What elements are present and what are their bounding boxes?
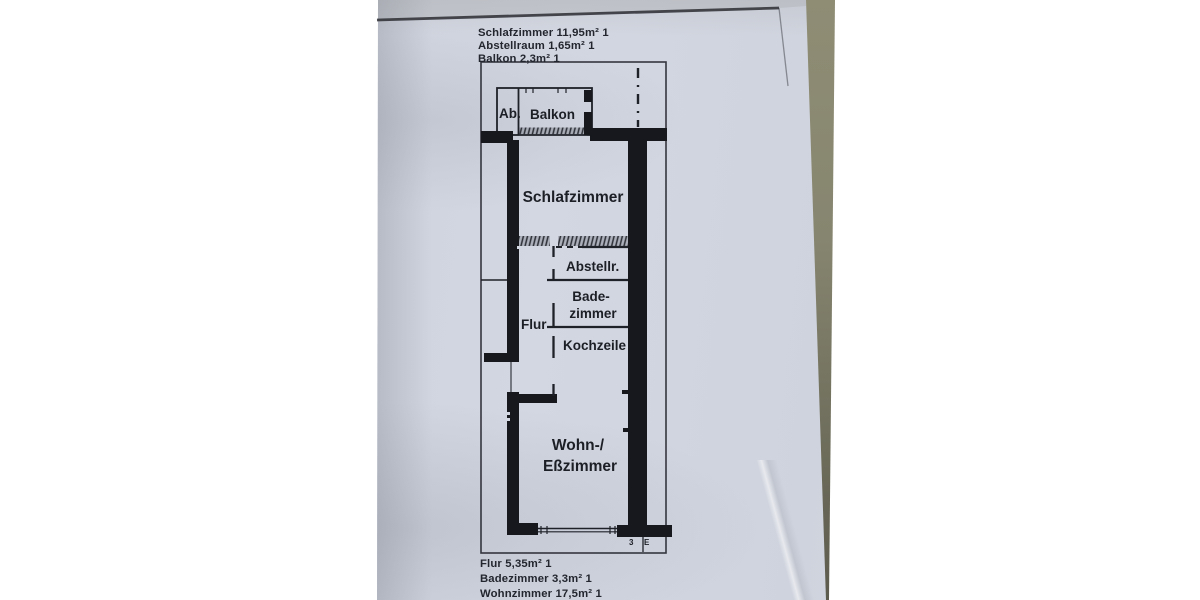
hatched-partition — [519, 236, 628, 246]
room-label-wohnzimmer-1: Wohn-/ — [552, 437, 605, 454]
room-label-flur: Flur — [521, 317, 547, 332]
wall-bottom-right-corner — [617, 525, 672, 537]
photo-of-floor-plan: Schlafzimmer 11,95m² 1 Abstellraum 1,65m… — [0, 0, 1200, 600]
legend-top-line3: Balkon 2,3m² 1 — [478, 53, 560, 65]
room-label-kochzeile: Kochzeile — [563, 338, 627, 353]
balcony-window-hatch — [519, 128, 587, 136]
room-label-schlafzimmer: Schlafzimmer — [523, 189, 624, 206]
room-label-balkon: Balkon — [530, 107, 575, 122]
wall-flur-bottom — [519, 394, 557, 403]
room-label-bad-2: zimmer — [569, 306, 617, 321]
room-label-ab: Ab. — [499, 106, 521, 121]
legend-bottom-line3: Wohnzimmer 17,5m² 1 — [480, 588, 602, 600]
plan-mark-e: E — [644, 538, 650, 547]
room-label-abstellraum: Abstellr. — [566, 259, 619, 274]
legend-bottom-line1: Flur 5,35m² 1 — [480, 558, 552, 570]
wall-bottom-left-corner — [507, 523, 538, 535]
room-label-wohnzimmer-2: Eßzimmer — [543, 458, 617, 475]
room-label-bad-1: Bade- — [572, 289, 610, 304]
wall-tick-right-1 — [622, 390, 628, 394]
plan-mark-3: 3 — [629, 538, 634, 547]
legend-top-line2: Abstellraum 1,65m² 1 — [478, 40, 595, 52]
wall-tick-right-2 — [623, 428, 628, 432]
legend-top: Schlafzimmer 11,95m² 1 Abstellraum 1,65m… — [478, 27, 609, 65]
legend-top-line1: Schlafzimmer 11,95m² 1 — [478, 27, 609, 39]
legend-bottom-line2: Badezimmer 3,3m² 1 — [480, 573, 592, 585]
legend-bottom: Flur 5,35m² 1 Badezimmer 3,3m² 1 Wohnzim… — [480, 558, 602, 600]
wall-left-stub — [484, 353, 519, 362]
floor-plan-drawing: Schlafzimmer 11,95m² 1 Abstellraum 1,65m… — [0, 0, 1200, 600]
wall-right — [628, 138, 647, 537]
